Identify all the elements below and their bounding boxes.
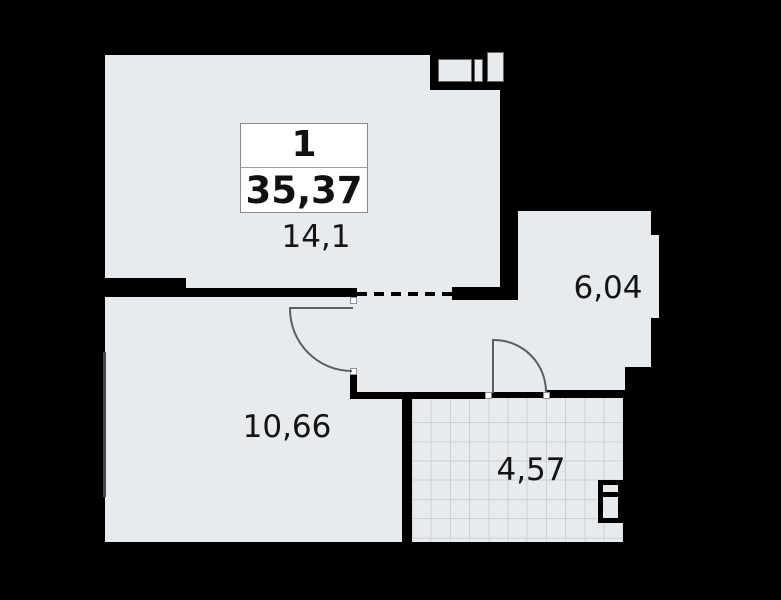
unit-total-area: 35,37 [241, 168, 367, 212]
wall-corridor-bottom-left [350, 392, 492, 399]
vent-cell-icon [603, 497, 618, 518]
vent-cell-icon [487, 52, 504, 82]
room-area-label-bathroom: 4,57 [496, 452, 565, 488]
bedroom-floor-annex [352, 398, 402, 542]
room-area-label-living: 14,1 [281, 219, 350, 255]
door-jamb [350, 297, 357, 304]
wall-bathroom-left [402, 393, 412, 542]
wall-bathroom-right [623, 390, 632, 542]
room-area-label-hallway: 6,04 [573, 270, 642, 306]
floor-plan: 1 35,37 14,1 10,66 6,04 4,57 [0, 0, 781, 600]
vent-cell-icon [438, 59, 472, 82]
open-passage-dashed-icon [357, 292, 452, 296]
door-jamb [485, 392, 492, 399]
hallway-floor-bump [651, 235, 659, 318]
room-area-label-bedroom: 10,66 [243, 409, 332, 445]
unit-rooms-count: 1 [241, 124, 367, 168]
window-marker-icon [103, 352, 106, 497]
wall-living-bedroom-thick [105, 278, 186, 297]
wall-bathroom-top-right [545, 390, 623, 398]
unit-info-card: 1 35,37 [240, 123, 368, 213]
door-jamb [543, 392, 550, 399]
vent-cell-icon [603, 485, 618, 492]
wall-living-bedroom-thin [186, 288, 357, 297]
wall-corridor-top [452, 287, 518, 300]
vent-cell-icon [474, 59, 483, 82]
